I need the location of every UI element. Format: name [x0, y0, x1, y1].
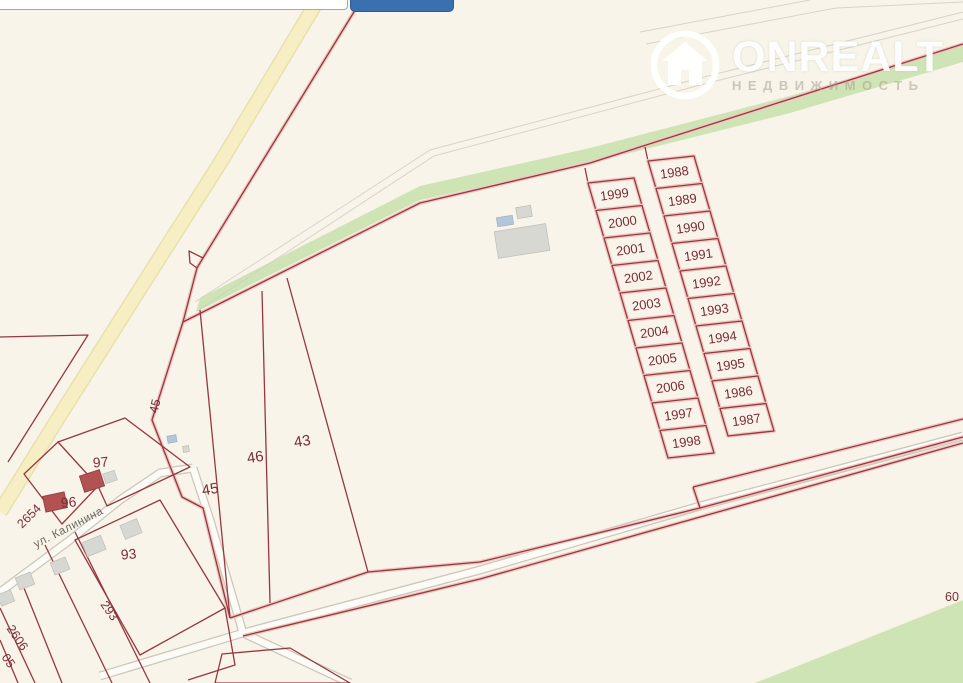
search-input[interactable]: [0, 0, 348, 10]
strip-divider-3: [287, 278, 368, 572]
parcel-year-label: 1992: [691, 273, 722, 292]
parcel-year-label: 2006: [655, 377, 686, 396]
roads-layer: [0, 436, 963, 683]
parcel-label: 05: [0, 651, 18, 670]
parcel-label: 43: [293, 432, 312, 451]
boundary-layer: [0, 7, 963, 683]
parcel-year-label: 2005: [647, 350, 678, 369]
building-blue: [496, 215, 513, 226]
parcel-year-label: 1987: [731, 410, 762, 429]
parcel-year-label: 1993: [699, 300, 730, 319]
parcel-label: 2654: [14, 501, 44, 531]
parcel-labels: 45454643979626549329326060560: [0, 398, 959, 671]
parcel-year-label: 1991: [683, 245, 714, 264]
parcel-year-label: 2004: [639, 322, 670, 341]
map-viewport[interactable]: 1999200020012002200320042005200619971998…: [0, 0, 963, 683]
building: [516, 205, 533, 218]
building-small: [183, 446, 190, 453]
parcel-year-label: 2002: [623, 267, 654, 286]
strip-divider-1: [200, 310, 230, 618]
strip-divider-2: [262, 291, 270, 603]
parcel-label: 45: [201, 480, 220, 500]
building: [120, 519, 142, 540]
building: [494, 224, 550, 259]
parcel-year-label: 1998: [671, 432, 702, 451]
parcel-label: 93: [120, 545, 137, 562]
building: [50, 557, 70, 575]
building: [103, 470, 118, 483]
green-corner: [755, 600, 963, 683]
parcel-label: 293: [98, 598, 121, 623]
parcel-label: 45: [147, 398, 164, 415]
search-button[interactable]: [350, 0, 454, 12]
parcel-year-label: 2003: [631, 295, 662, 314]
parcel-year-label: 1997: [663, 405, 694, 424]
parcel-year-label: 1988: [659, 163, 690, 182]
parcel-year-label: 2000: [607, 212, 638, 231]
parcel-label: 60: [945, 590, 959, 604]
parcel-year-label: 1989: [667, 190, 698, 209]
parcel-year-label: 2001: [615, 240, 646, 259]
cadastral-map[interactable]: 1999200020012002200320042005200619971998…: [0, 0, 963, 683]
parcel-year-label: 1999: [599, 185, 630, 204]
building-red: [79, 470, 104, 493]
parcel-year-label: 1986: [723, 383, 754, 402]
parcel-year-label: 1994: [707, 328, 738, 347]
parcel-label: 97: [92, 453, 109, 470]
parcel-year-label: 1995: [715, 355, 746, 374]
parcel-label: 46: [246, 448, 265, 467]
boundary-halo-layer: [152, 7, 963, 636]
building-small: [167, 435, 177, 443]
parcel-columns: 1999200020012002200320042005200619971998…: [588, 156, 774, 458]
parcel-label: 96: [60, 493, 77, 510]
parcel-year-label: 1990: [675, 218, 706, 237]
parcel-label: 2606: [4, 622, 31, 653]
